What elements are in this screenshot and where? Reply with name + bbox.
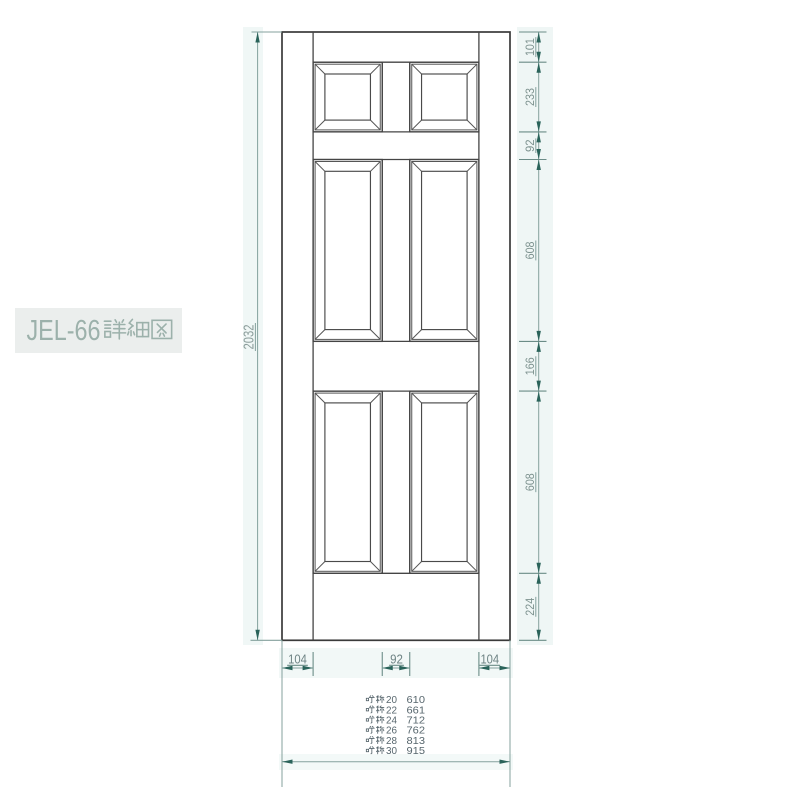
svg-text:JEL-66: JEL-66 [27, 315, 101, 347]
svg-text:2032: 2032 [240, 325, 257, 350]
svg-text:92: 92 [523, 139, 537, 152]
svg-text:101: 101 [523, 38, 537, 56]
svg-text:608: 608 [523, 241, 537, 259]
svg-text:233: 233 [523, 88, 537, 106]
svg-text:104: 104 [288, 652, 307, 667]
svg-text:224: 224 [523, 598, 537, 616]
svg-text:30: 30 [386, 745, 397, 757]
svg-text:104: 104 [480, 652, 499, 667]
svg-text:92: 92 [390, 652, 403, 667]
svg-text:608: 608 [523, 473, 537, 491]
svg-text:915: 915 [407, 745, 426, 757]
svg-text:166: 166 [523, 357, 537, 375]
